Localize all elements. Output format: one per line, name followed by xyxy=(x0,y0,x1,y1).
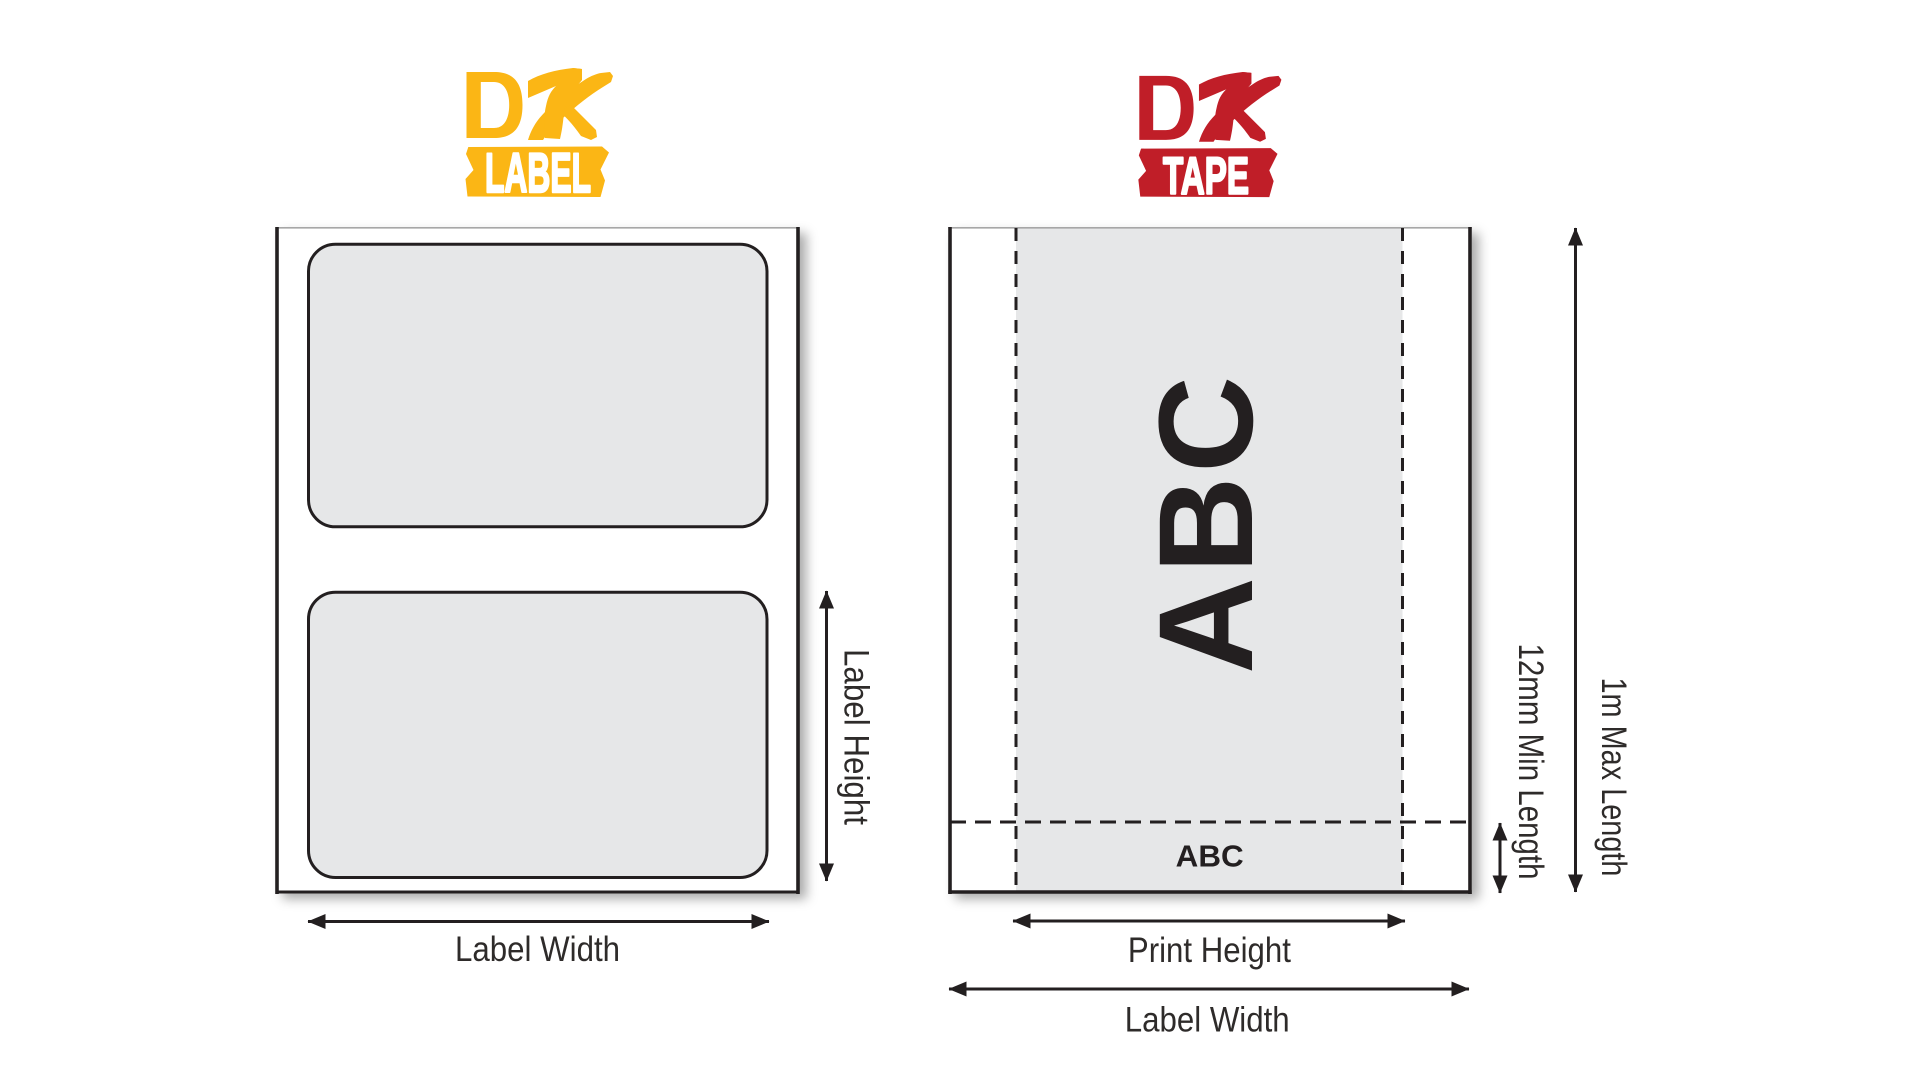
svg-text:ABC: ABC xyxy=(1132,376,1281,674)
svg-text:12mm Min Length: 12mm Min Length xyxy=(1511,644,1550,880)
svg-text:LABEL: LABEL xyxy=(485,141,591,204)
svg-text:Label Width: Label Width xyxy=(1125,1001,1290,1040)
svg-text:1m Max Length: 1m Max Length xyxy=(1594,678,1633,877)
svg-text:TAPE: TAPE xyxy=(1163,148,1249,206)
svg-text:Label Height: Label Height xyxy=(837,649,876,825)
svg-text:Print Height: Print Height xyxy=(1128,931,1291,970)
svg-text:ABC: ABC xyxy=(1176,839,1244,874)
svg-text:Label Width: Label Width xyxy=(455,930,620,969)
